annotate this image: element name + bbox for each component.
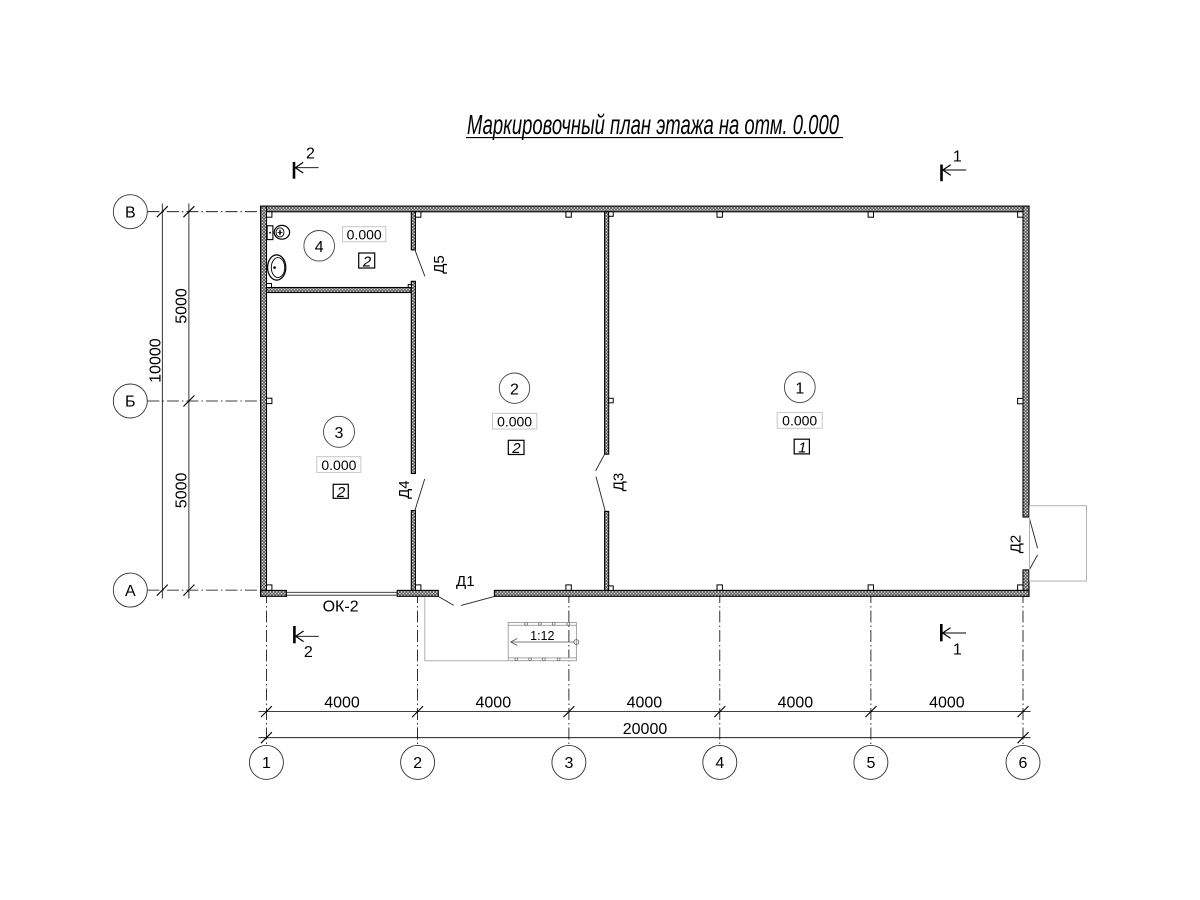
svg-text:5000: 5000: [174, 473, 191, 509]
svg-text:ОК-2: ОК-2: [323, 598, 359, 615]
svg-text:1: 1: [798, 439, 806, 456]
svg-text:1:12: 1:12: [530, 629, 554, 643]
svg-text:0.000: 0.000: [782, 413, 817, 429]
svg-text:3: 3: [564, 755, 573, 772]
svg-text:4000: 4000: [324, 695, 360, 712]
svg-text:4: 4: [315, 239, 324, 256]
svg-text:1: 1: [953, 642, 962, 659]
svg-text:1: 1: [953, 148, 962, 165]
svg-text:Д2: Д2: [1008, 535, 1025, 554]
svg-text:4: 4: [715, 755, 724, 772]
svg-text:2: 2: [362, 254, 372, 271]
svg-text:4000: 4000: [476, 695, 512, 712]
svg-text:10000: 10000: [147, 338, 164, 383]
svg-text:Д1: Д1: [456, 573, 475, 590]
svg-text:Д4: Д4: [396, 480, 413, 499]
svg-text:1: 1: [262, 755, 271, 772]
svg-text:20000: 20000: [623, 721, 668, 738]
svg-text:5: 5: [866, 755, 875, 772]
svg-text:6: 6: [1019, 755, 1028, 772]
svg-text:Д3: Д3: [611, 473, 628, 492]
svg-text:4000: 4000: [778, 695, 814, 712]
svg-text:А: А: [125, 583, 136, 600]
svg-text:3: 3: [335, 425, 344, 442]
svg-text:2: 2: [511, 440, 521, 457]
svg-text:2: 2: [413, 755, 422, 772]
svg-text:Маркировочный план этажа на от: Маркировочный план этажа на отм. 0.000: [467, 109, 839, 140]
svg-text:1: 1: [795, 380, 804, 397]
svg-text:0.000: 0.000: [497, 413, 532, 429]
svg-text:4000: 4000: [627, 695, 663, 712]
svg-text:2: 2: [304, 644, 313, 661]
svg-text:5000: 5000: [174, 288, 191, 324]
svg-text:Д5: Д5: [431, 255, 448, 274]
svg-text:2: 2: [306, 146, 315, 163]
svg-text:0.000: 0.000: [321, 457, 356, 473]
svg-text:2: 2: [336, 484, 346, 501]
svg-text:4000: 4000: [929, 695, 965, 712]
svg-text:Б: Б: [125, 394, 136, 411]
svg-text:В: В: [125, 204, 136, 221]
svg-text:2: 2: [510, 381, 519, 398]
svg-text:0.000: 0.000: [347, 226, 382, 242]
